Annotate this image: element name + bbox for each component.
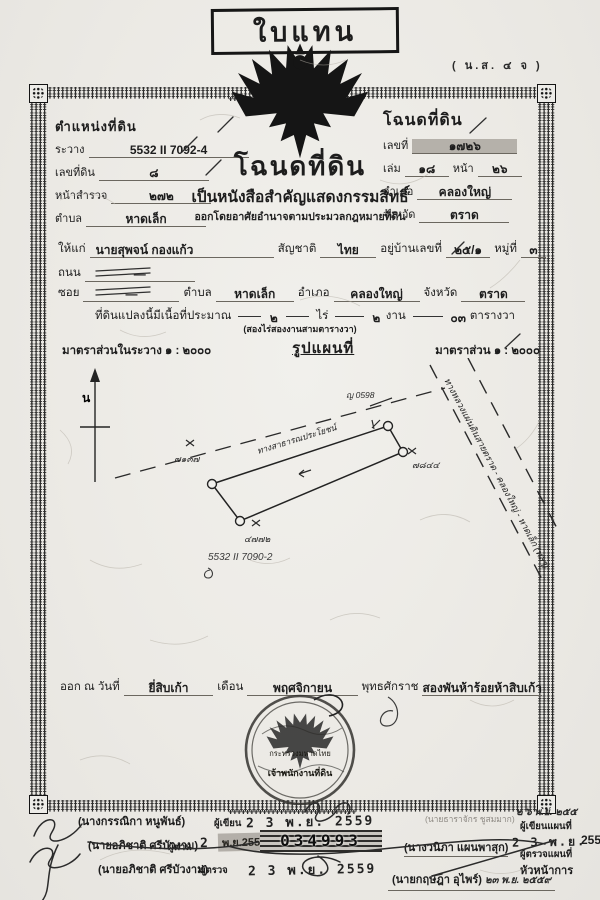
tambon-label: ตำบล <box>55 209 82 227</box>
address-label: อยู่บ้านเลขที่ <box>380 240 442 258</box>
road-line: ถนน — <box>58 264 195 282</box>
rawang-label: ระวาง <box>55 140 85 158</box>
approver-name: (นายกฤษฎา อุไพร์) <box>392 874 482 886</box>
deed-block-title: โฉนดที่ดิน <box>383 108 548 133</box>
grantee-tambon-label: ตำบล <box>183 284 211 302</box>
grantee-to-label: ให้แก่ <box>58 240 86 258</box>
reviewer-role-label: ผู้ทาน <box>168 840 192 855</box>
highway-label: ทางหลวงแผ่นดินสายตราด - คลองใหญ่ - หาดเล… <box>441 376 552 570</box>
address-value: ๒๕/๑ <box>446 243 490 258</box>
area-in-words: (สองไร่สองงานสามตารางวา) <box>190 322 410 336</box>
grantee-line: ให้แก่ นายสุพจน์ กองแก้ว สัญชาติ ไทย อยู… <box>58 240 546 258</box>
grantee-province-value: ตราด <box>461 287 525 302</box>
issue-year: สองพันห้าร้อยห้าสิบเก้า <box>422 681 542 696</box>
area-wa-value: ๐๓ <box>450 311 466 325</box>
north-compass-icon <box>80 368 110 482</box>
document-authority-note: ออกโดยอาศัยอำนาจตามประมวลกฎหมายที่ดิน <box>150 208 450 225</box>
map-checker-name: (นางวนิภา แผนพาสุก) <box>404 838 508 857</box>
corner-rosette-icon <box>29 84 48 103</box>
approver-date: ๒๓ พ.ย. ๒๕๕๙ <box>485 875 551 886</box>
marker-number-right: ๗๘๔๔ <box>412 460 441 470</box>
inspector-date-stamp: 2 3 พ.ย. 2559 <box>248 858 377 882</box>
issue-day: ยี่สิบเก้า <box>124 681 214 696</box>
official-seal: กระทรวงมหาดไทย เจ้าพนักงานที่ดิน <box>228 690 373 805</box>
soi-label: ซอย <box>58 284 79 302</box>
corner-rosette-icon <box>537 84 556 103</box>
issue-prefix: ออก ณ วันที่ <box>60 678 120 696</box>
road-label: ถนน <box>58 264 81 282</box>
moo-value: ๓ <box>521 243 546 258</box>
soi-value: — <box>83 287 179 302</box>
garuda-emblem-icon <box>222 42 378 166</box>
moo-label: หมู่ที่ <box>494 240 517 258</box>
survey-page-label: หน้าสำรวจ <box>55 186 107 204</box>
grantee-name: นายสุพจน์ กองแก้ว <box>90 243 274 258</box>
map-checker-label: ผู้ตรวจแผนที่ <box>520 847 572 862</box>
map-clerk-name: (นายธาราจักร ชูสมมาก) <box>425 812 515 826</box>
north-label: น <box>82 391 91 405</box>
writer-role-label: ผู้เขียน <box>214 816 241 831</box>
approver-line: (นายกฤษฎา อุไพร์) ๒๓ พ.ย. ๒๕๕๙ <box>388 870 555 891</box>
wa-label: ตารางวา <box>470 307 515 325</box>
marker-number-bottom: ๔๗๗๒ <box>244 534 270 544</box>
soi-line: ซอย — ตำบล หาดเล็ก อำเภอ คลองใหญ่ จังหวั… <box>58 284 546 302</box>
serial-number: 034993 <box>260 830 382 852</box>
public-road-label: ทางสาธารณประโยชน์ <box>256 422 340 456</box>
seal-ministry-text: กระทรวงมหาดไทย <box>269 749 331 758</box>
form-code: ( น.ส. ๔ จ ) <box>452 56 592 74</box>
nationality-value: ไทย <box>320 243 376 258</box>
page-label: หน้า <box>453 159 474 177</box>
map-sheet-note: 5532 II 7090-2 <box>208 552 273 563</box>
writer-name: (นางกรรณิกา หนูพันธ์) <box>78 812 185 830</box>
corner-rosette-icon <box>29 795 48 814</box>
scale-line: มาตราส่วนในระวาง ๑ : ๒๐๐๐ รูปแผนที่ มาตร… <box>62 336 540 360</box>
land-deed-document: ‡‡‡‡‡‡‡‡‡‡‡‡‡‡‡‡‡‡‡‡‡‡‡‡‡‡‡‡‡‡‡‡‡‡‡‡‡‡‡‡… <box>0 0 600 900</box>
seal-garuda-icon <box>267 714 334 769</box>
nationality-label: สัญชาติ <box>278 240 317 258</box>
marker-number-tl: ๗๑๓๗ <box>174 454 201 464</box>
inspector-role-label: ผู้ตรวจ <box>200 863 228 878</box>
map-checker-date-cut: 255 <box>581 833 600 847</box>
grantee-province-label: จังหวัด <box>424 284 458 302</box>
grantee-tambon-value: หาดเล็ก <box>216 287 294 302</box>
marker-number-top: ญ 0598 <box>346 390 375 400</box>
grantee-amphoe-label: อำเภอ <box>298 284 330 302</box>
parcel-no-label: เลขที่ดิน <box>55 163 95 181</box>
parcel-map: น ทางสาธารณประโยชน์ ๗๑๓๗ ญ 0598 ๗๘๔๔ ๔๗๗… <box>40 358 560 620</box>
grantee-amphoe-value: คลองใหญ่ <box>334 287 420 302</box>
map-writer-hand-date: ๒ ๖ พ.ย. ๒๕๕ <box>516 805 577 820</box>
document-subtitle: เป็นหนังสือสำคัญแสดงกรรมสิทธิ์ <box>120 184 480 209</box>
inspector-name: (นายอภิชาติ ศรีบัวงาม) <box>98 860 208 878</box>
map-title: รูปแผนที่ <box>292 336 354 360</box>
page-value: ๒๖ <box>478 162 522 177</box>
road-value: — <box>85 267 195 282</box>
seal-officer-text: เจ้าพนักงานที่ดิน <box>268 766 333 778</box>
